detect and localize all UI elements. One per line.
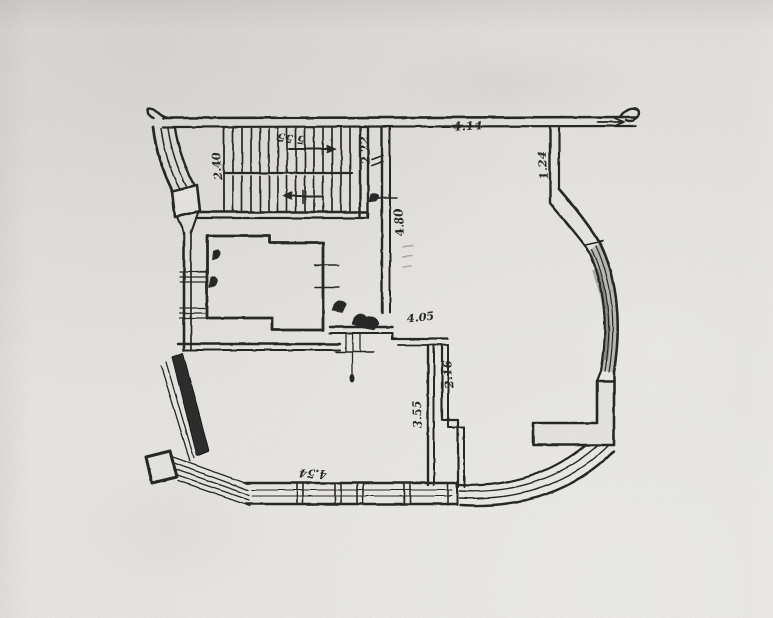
scanned-paper-background: 5.55 2.40 2.22 4.14 4.80 1.24 4.05 2.16 … — [0, 0, 773, 618]
paper-grain-overlay — [0, 0, 773, 618]
floor-plan-drawing: 5.55 2.40 2.22 4.14 4.80 1.24 4.05 2.16 … — [0, 0, 773, 618]
